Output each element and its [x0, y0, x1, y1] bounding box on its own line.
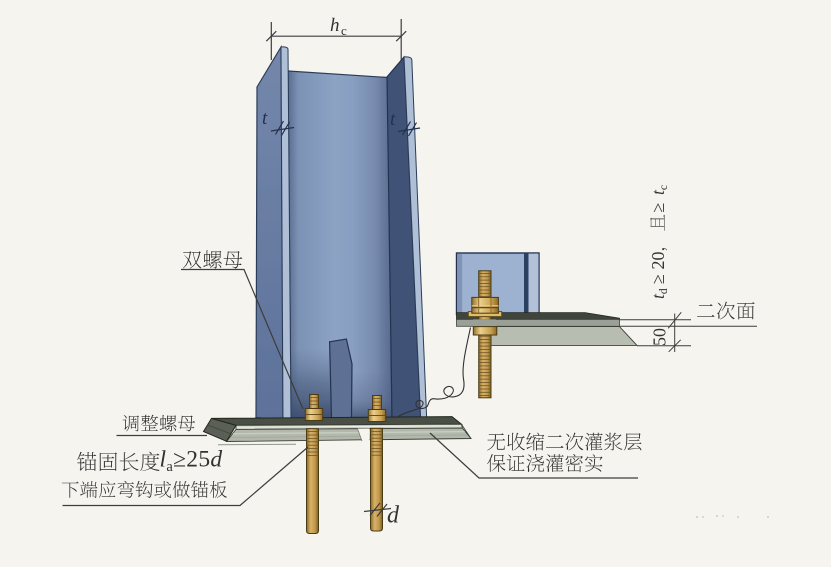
svg-text:d: d	[387, 503, 400, 529]
svg-text:20: 20	[648, 252, 668, 270]
svg-text:c: c	[341, 23, 347, 38]
svg-text:h: h	[330, 15, 340, 36]
svg-text:t: t	[390, 109, 396, 130]
svg-text:t: t	[262, 108, 268, 129]
svg-text:≥: ≥	[648, 203, 668, 213]
svg-text:50: 50	[650, 328, 670, 346]
svg-text:≥: ≥	[648, 274, 668, 284]
